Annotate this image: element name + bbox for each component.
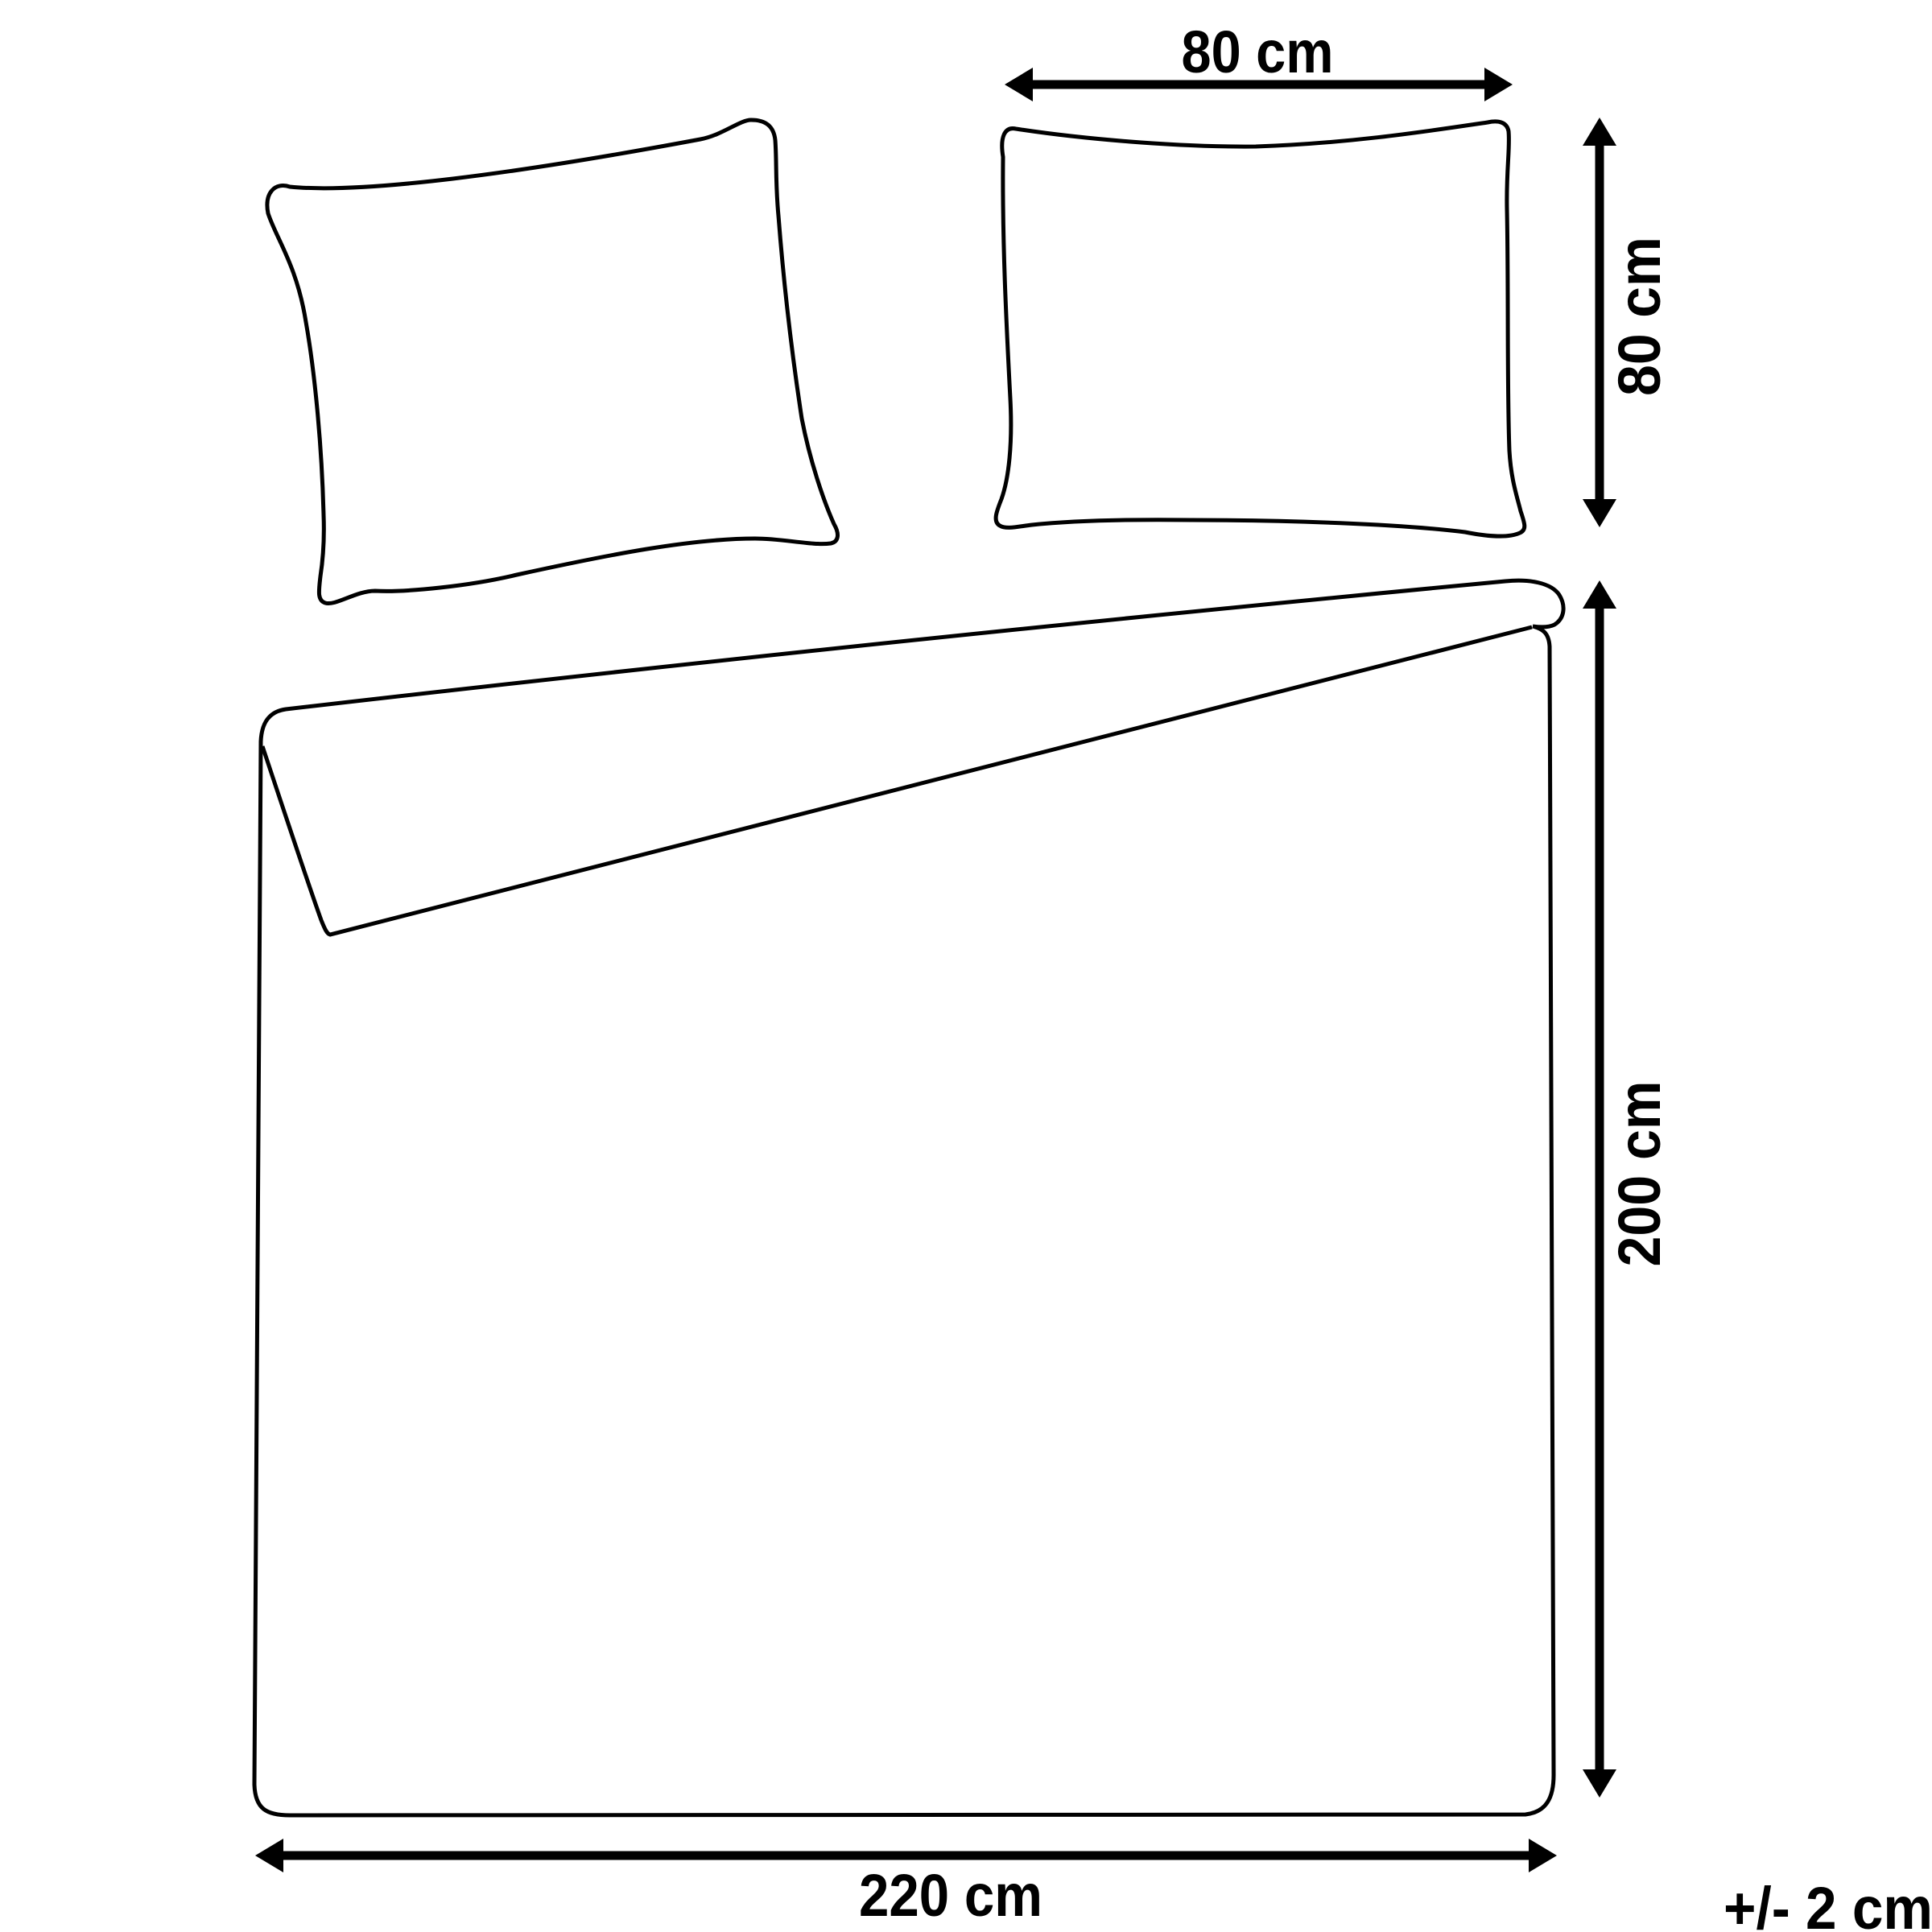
svg-text:80 cm: 80 cm bbox=[1606, 237, 1673, 396]
svg-text:80 cm: 80 cm bbox=[1182, 19, 1334, 85]
svg-text:200 cm: 200 cm bbox=[1606, 1081, 1673, 1267]
svg-text:220 cm: 220 cm bbox=[859, 1862, 1042, 1929]
svg-text:+/- 2 cm: +/- 2 cm bbox=[1724, 1875, 1932, 1932]
